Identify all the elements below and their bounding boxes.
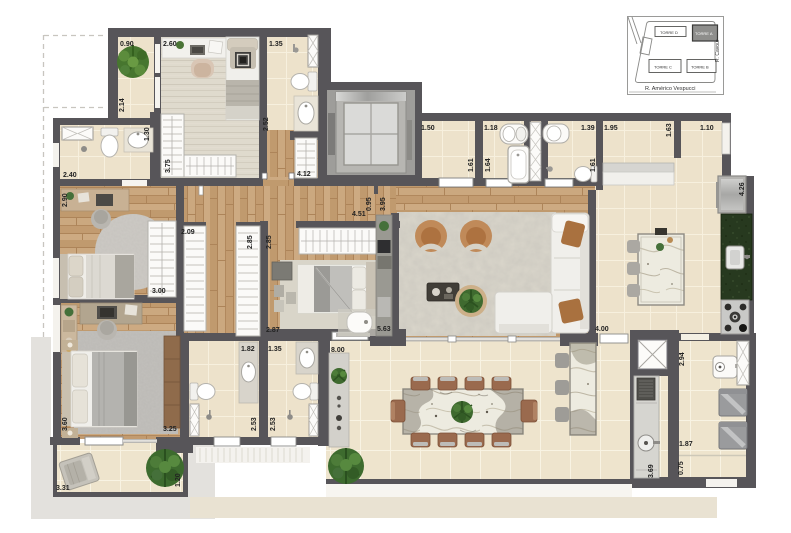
- svg-text:4.00: 4.00: [595, 326, 609, 333]
- svg-text:2.85: 2.85: [247, 235, 254, 249]
- svg-text:2.52: 2.52: [263, 117, 270, 131]
- svg-text:R. Cavour: R. Cavour: [715, 39, 721, 62]
- svg-text:1.30: 1.30: [144, 127, 151, 141]
- svg-text:1.35: 1.35: [268, 346, 282, 353]
- svg-text:1.61: 1.61: [468, 158, 475, 172]
- svg-text:2.87: 2.87: [266, 327, 280, 334]
- svg-text:2.09: 2.09: [181, 229, 195, 236]
- svg-text:3.31: 3.31: [56, 485, 70, 492]
- svg-text:1.18: 1.18: [484, 125, 498, 132]
- svg-text:3.25: 3.25: [163, 426, 177, 433]
- svg-text:2.85: 2.85: [266, 235, 273, 249]
- svg-text:2.90: 2.90: [62, 193, 69, 207]
- svg-text:2.40: 2.40: [63, 172, 77, 179]
- svg-text:TORRE D: TORRE D: [660, 30, 678, 35]
- svg-text:1.10: 1.10: [700, 125, 714, 132]
- svg-text:4.51: 4.51: [352, 211, 366, 218]
- svg-text:2.60: 2.60: [163, 41, 177, 48]
- svg-text:3.69: 3.69: [648, 464, 655, 478]
- svg-text:1.95: 1.95: [604, 125, 618, 132]
- svg-text:0.90: 0.90: [120, 41, 134, 48]
- svg-text:8.00: 8.00: [331, 347, 345, 354]
- svg-text:2.94: 2.94: [679, 352, 686, 366]
- svg-text:1.82: 1.82: [241, 346, 255, 353]
- svg-text:TORRE A: TORRE A: [695, 31, 713, 36]
- svg-text:5.63: 5.63: [377, 326, 391, 333]
- svg-text:1.64: 1.64: [485, 158, 492, 172]
- svg-text:2.53: 2.53: [251, 417, 258, 431]
- svg-text:1.61: 1.61: [590, 158, 597, 172]
- svg-text:3.75: 3.75: [165, 159, 172, 173]
- svg-text:1.63: 1.63: [666, 123, 673, 137]
- svg-text:3.95: 3.95: [380, 197, 387, 211]
- svg-text:3.00: 3.00: [152, 288, 166, 295]
- svg-text:4.12: 4.12: [297, 171, 311, 178]
- svg-text:1.50: 1.50: [421, 125, 435, 132]
- svg-text:1.87: 1.87: [679, 441, 693, 448]
- svg-text:0.75: 0.75: [678, 461, 685, 475]
- svg-text:2.53: 2.53: [270, 417, 277, 431]
- svg-text:1.20: 1.20: [175, 473, 182, 487]
- svg-text:4.26: 4.26: [739, 182, 746, 196]
- svg-text:1.39: 1.39: [581, 125, 595, 132]
- svg-text:2.14: 2.14: [119, 98, 126, 112]
- svg-text:1.35: 1.35: [269, 41, 283, 48]
- svg-text:TORRE B: TORRE B: [691, 65, 709, 70]
- svg-text:TORRE C: TORRE C: [654, 65, 672, 70]
- svg-text:0.95: 0.95: [366, 197, 373, 211]
- svg-text:3.60: 3.60: [62, 417, 69, 431]
- svg-text:R. Américo Vespucci: R. Américo Vespucci: [645, 86, 695, 92]
